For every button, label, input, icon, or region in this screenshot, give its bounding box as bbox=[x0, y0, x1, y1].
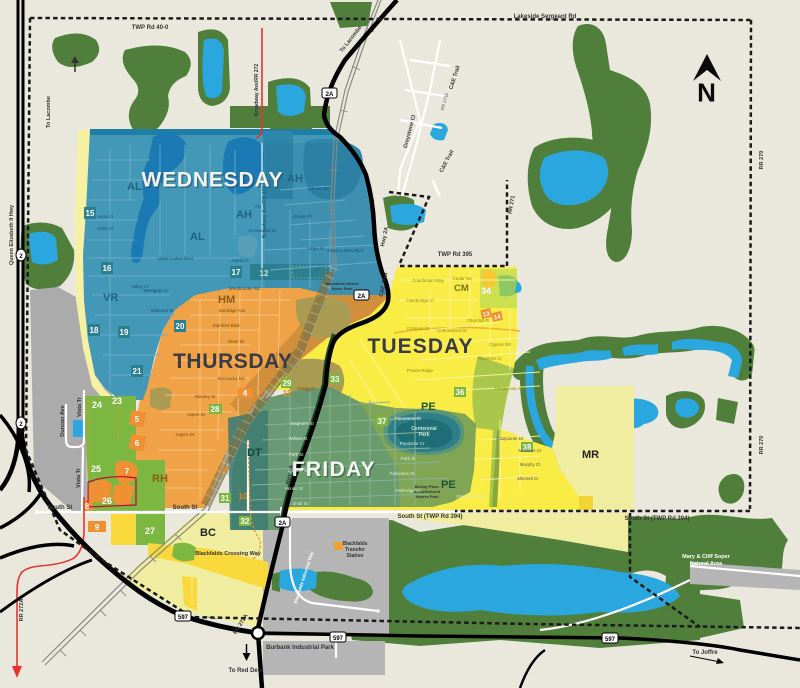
svg-text:36: 36 bbox=[456, 388, 465, 397]
svg-text:Park St: Park St bbox=[401, 456, 417, 461]
svg-text:Mary & Cliff Soper: Mary & Cliff Soper bbox=[682, 554, 731, 560]
svg-text:Sunridge Ave: Sunridge Ave bbox=[219, 308, 246, 313]
svg-text:21: 21 bbox=[133, 367, 142, 376]
svg-text:South St: South St bbox=[173, 505, 198, 511]
svg-text:RR 272A: RR 272A bbox=[19, 599, 25, 622]
svg-text:Broadway Ave/RR 272: Broadway Ave/RR 272 bbox=[254, 64, 260, 117]
svg-text:PE: PE bbox=[441, 479, 456, 491]
svg-text:37: 37 bbox=[378, 417, 387, 426]
svg-text:TUESDAY: TUESDAY bbox=[368, 335, 473, 358]
svg-text:South St: South St bbox=[48, 505, 73, 511]
svg-text:2A: 2A bbox=[279, 521, 287, 527]
svg-text:Cottonwood Dr: Cottonwood Dr bbox=[437, 328, 468, 333]
svg-text:16: 16 bbox=[103, 264, 112, 273]
svg-text:Cambridge Cl: Cambridge Cl bbox=[406, 298, 434, 303]
svg-text:Palmer Circle: Palmer Circle bbox=[456, 494, 484, 499]
svg-text:Mitchell Cr: Mitchell Cr bbox=[517, 476, 539, 481]
svg-text:Aspen Lakes Blvd: Aspen Lakes Blvd bbox=[327, 248, 364, 253]
svg-text:Natural Area: Natural Area bbox=[690, 561, 723, 567]
svg-text:AL: AL bbox=[127, 181, 142, 193]
svg-text:Home Park: Home Park bbox=[332, 286, 354, 291]
svg-text:34: 34 bbox=[481, 286, 491, 296]
svg-text:Anna Cl: Anna Cl bbox=[97, 214, 113, 219]
svg-text:26: 26 bbox=[102, 496, 112, 506]
svg-text:Park St: Park St bbox=[289, 452, 305, 457]
svg-text:Plumtree Cr: Plumtree Cr bbox=[478, 356, 503, 361]
svg-text:Wilson St: Wilson St bbox=[288, 436, 308, 441]
svg-text:AH: AH bbox=[287, 173, 303, 185]
svg-text:6: 6 bbox=[135, 439, 140, 448]
svg-text:Queen Elizabeth II Hwy: Queen Elizabeth II Hwy bbox=[9, 204, 15, 265]
svg-text:Pondside Cr: Pondside Cr bbox=[400, 441, 425, 446]
svg-text:Burbank Industrial Park: Burbank Industrial Park bbox=[266, 645, 334, 651]
svg-text:To Lacombe: To Lacombe bbox=[46, 96, 52, 128]
svg-text:11: 11 bbox=[283, 389, 292, 398]
svg-text:TWP Rd 395: TWP Rd 395 bbox=[438, 252, 473, 258]
svg-text:Aspen Lakes Blvd: Aspen Lakes Blvd bbox=[157, 256, 194, 261]
svg-text:Adina Cl: Adina Cl bbox=[231, 258, 248, 263]
svg-text:Cyprus Rd: Cyprus Rd bbox=[489, 342, 511, 347]
svg-text:TWP Rd 40-0: TWP Rd 40-0 bbox=[132, 25, 169, 31]
svg-text:MR: MR bbox=[582, 449, 599, 461]
svg-text:Arlen Cl: Arlen Cl bbox=[97, 226, 113, 231]
svg-text:Silver Dr: Silver Dr bbox=[227, 339, 245, 344]
svg-text:29: 29 bbox=[283, 379, 292, 388]
svg-text:BC: BC bbox=[200, 527, 216, 539]
svg-text:30: 30 bbox=[220, 466, 229, 475]
svg-text:Arrowwood Cl: Arrowwood Cl bbox=[248, 228, 276, 233]
svg-text:Park St: Park St bbox=[289, 0, 305, 1]
svg-text:15: 15 bbox=[86, 209, 95, 218]
svg-text:Maclean Cr: Maclean Cr bbox=[518, 448, 542, 453]
svg-text:Vista Tr: Vista Tr bbox=[76, 467, 82, 488]
svg-text:Churchill Pl: Churchill Pl bbox=[467, 318, 490, 323]
svg-text:Eastpointe Dr: Eastpointe Dr bbox=[496, 436, 524, 441]
svg-text:17: 17 bbox=[232, 268, 241, 277]
svg-text:Gregg St: Gregg St bbox=[297, 386, 316, 391]
svg-text:Blackfalds Crossing Way: Blackfalds Crossing Way bbox=[195, 551, 261, 557]
svg-text:12: 12 bbox=[260, 269, 269, 278]
svg-text:Stanley St: Stanley St bbox=[195, 394, 216, 399]
svg-text:Stanford Blvd: Stanford Blvd bbox=[212, 323, 240, 328]
svg-text:CM: CM bbox=[454, 283, 469, 294]
svg-text:Shull St: Shull St bbox=[292, 501, 308, 506]
svg-text:PE: PE bbox=[421, 401, 436, 413]
svg-text:Park: Park bbox=[419, 432, 430, 438]
svg-text:31: 31 bbox=[221, 494, 230, 503]
svg-text:AL: AL bbox=[190, 231, 205, 243]
svg-text:AH: AH bbox=[236, 209, 252, 221]
svg-text:Westbrooke Rd: Westbrooke Rd bbox=[229, 286, 260, 291]
svg-text:Parkridge Cr: Parkridge Cr bbox=[395, 488, 421, 493]
svg-text:DT: DT bbox=[247, 447, 262, 459]
svg-text:4: 4 bbox=[243, 389, 248, 398]
svg-text:10: 10 bbox=[239, 492, 248, 501]
svg-text:24: 24 bbox=[92, 400, 102, 410]
svg-text:Valley Cr: Valley Cr bbox=[131, 284, 149, 289]
svg-text:28: 28 bbox=[211, 405, 220, 414]
svg-text:2A: 2A bbox=[326, 92, 334, 98]
svg-text:To Red Deer: To Red Deer bbox=[229, 668, 265, 674]
svg-text:THURSDAY: THURSDAY bbox=[173, 350, 292, 373]
svg-text:Ponderosa Ave: Ponderosa Ave bbox=[495, 386, 526, 391]
svg-text:Panorama Dr: Panorama Dr bbox=[395, 416, 422, 421]
svg-text:HM: HM bbox=[218, 294, 235, 306]
svg-text:9: 9 bbox=[95, 523, 100, 532]
svg-text:VR: VR bbox=[103, 292, 118, 304]
svg-text:597: 597 bbox=[333, 636, 344, 642]
svg-text:RR 270: RR 270 bbox=[759, 151, 765, 170]
svg-text:Prairie Ridge: Prairie Ridge bbox=[407, 368, 434, 373]
svg-text:Station: Station bbox=[347, 553, 364, 559]
svg-text:32: 32 bbox=[241, 517, 250, 526]
svg-text:597: 597 bbox=[178, 615, 189, 621]
svg-text:Vista Tr: Vista Tr bbox=[77, 396, 83, 417]
svg-text:RH: RH bbox=[152, 473, 168, 485]
svg-text:33: 33 bbox=[331, 375, 340, 384]
svg-text:2A: 2A bbox=[358, 294, 366, 300]
svg-text:Duncan Ave: Duncan Ave bbox=[60, 405, 66, 436]
svg-text:8: 8 bbox=[85, 502, 90, 511]
svg-text:19: 19 bbox=[120, 328, 129, 337]
svg-text:Aspen Dr: Aspen Dr bbox=[176, 432, 195, 437]
svg-text:27: 27 bbox=[145, 526, 155, 536]
svg-text:597: 597 bbox=[605, 637, 616, 643]
svg-text:South St (TWP Rd 394): South St (TWP Rd 394) bbox=[398, 514, 463, 520]
svg-text:Crimson Ct: Crimson Ct bbox=[407, 326, 430, 331]
svg-text:Athens Rd: Athens Rd bbox=[307, 186, 329, 191]
svg-text:Homes Park: Homes Park bbox=[415, 494, 439, 499]
svg-text:18: 18 bbox=[90, 326, 99, 335]
svg-text:Lakeside Sergeant Rd: Lakeside Sergeant Rd bbox=[514, 14, 577, 20]
svg-text:To Joffre: To Joffre bbox=[692, 650, 718, 656]
svg-text:Palisades St: Palisades St bbox=[389, 471, 415, 476]
svg-text:RR 270: RR 270 bbox=[759, 436, 765, 455]
svg-text:7: 7 bbox=[125, 467, 130, 476]
svg-text:Coachman Way: Coachman Way bbox=[412, 278, 445, 283]
svg-text:Athens Pl: Athens Pl bbox=[292, 214, 311, 219]
svg-text:Valmond St: Valmond St bbox=[151, 308, 175, 313]
svg-text:Aspen Dr: Aspen Dr bbox=[187, 412, 206, 417]
svg-text:AH: AH bbox=[255, 204, 261, 209]
svg-text:20: 20 bbox=[176, 322, 185, 331]
svg-text:Waghorn St: Waghorn St bbox=[290, 421, 314, 426]
svg-text:5: 5 bbox=[135, 415, 140, 424]
svg-text:South St (TWP Rd 394): South St (TWP Rd 394) bbox=[625, 516, 690, 522]
svg-text:Aztec Cr: Aztec Cr bbox=[307, 246, 325, 251]
svg-text:25: 25 bbox=[91, 464, 101, 474]
svg-text:N: N bbox=[697, 78, 716, 108]
svg-text:Murphy Cl: Murphy Cl bbox=[520, 462, 541, 467]
svg-text:Cedar Sq: Cedar Sq bbox=[452, 276, 472, 281]
svg-text:Womacks Rd: Womacks Rd bbox=[218, 376, 245, 381]
svg-text:23: 23 bbox=[112, 396, 122, 406]
svg-text:Indiana St: Indiana St bbox=[288, 468, 309, 473]
svg-text:Winks St: Winks St bbox=[285, 486, 304, 491]
